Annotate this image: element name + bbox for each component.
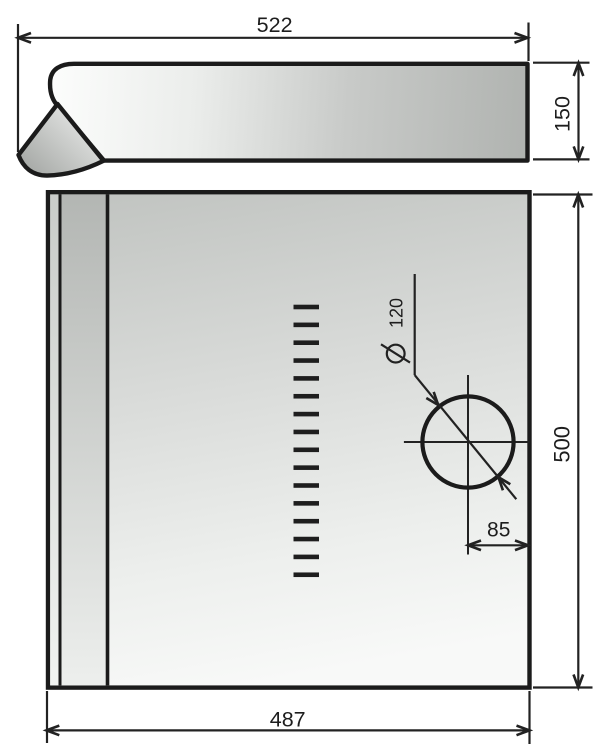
svg-text:150: 150: [551, 96, 575, 132]
svg-text:120: 120: [387, 298, 407, 328]
svg-text:85: 85: [487, 519, 510, 542]
svg-text:500: 500: [550, 426, 575, 463]
svg-text:487: 487: [270, 708, 306, 732]
svg-text:522: 522: [257, 13, 293, 37]
